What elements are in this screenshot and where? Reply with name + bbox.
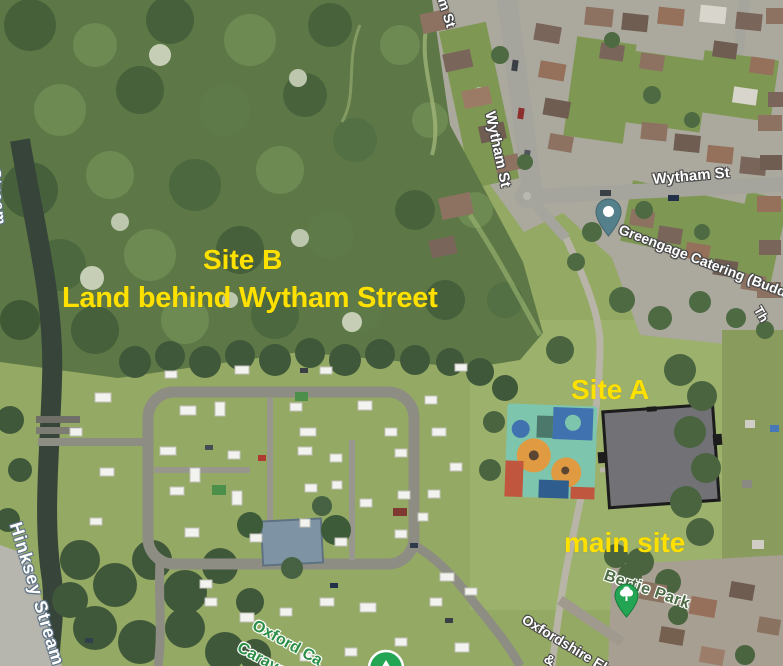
satellite-scenery xyxy=(0,0,783,666)
bertie-park-tree-pin-icon[interactable] xyxy=(614,583,639,623)
annotation-site-b-title: Site B xyxy=(203,246,282,274)
playground xyxy=(504,403,597,499)
greengage-location-pin-icon[interactable] xyxy=(595,198,622,242)
annotation-site-b-subtitle: Land behind Wytham Street xyxy=(62,284,437,313)
satellite-map-canvas[interactable]: Stream Hinksey Stream m St Wytham St Wyt… xyxy=(0,0,783,666)
annotation-site-a: Site A xyxy=(571,376,649,404)
campsite-pin-icon[interactable] xyxy=(366,648,406,666)
annotation-main-site: main site xyxy=(564,529,685,557)
